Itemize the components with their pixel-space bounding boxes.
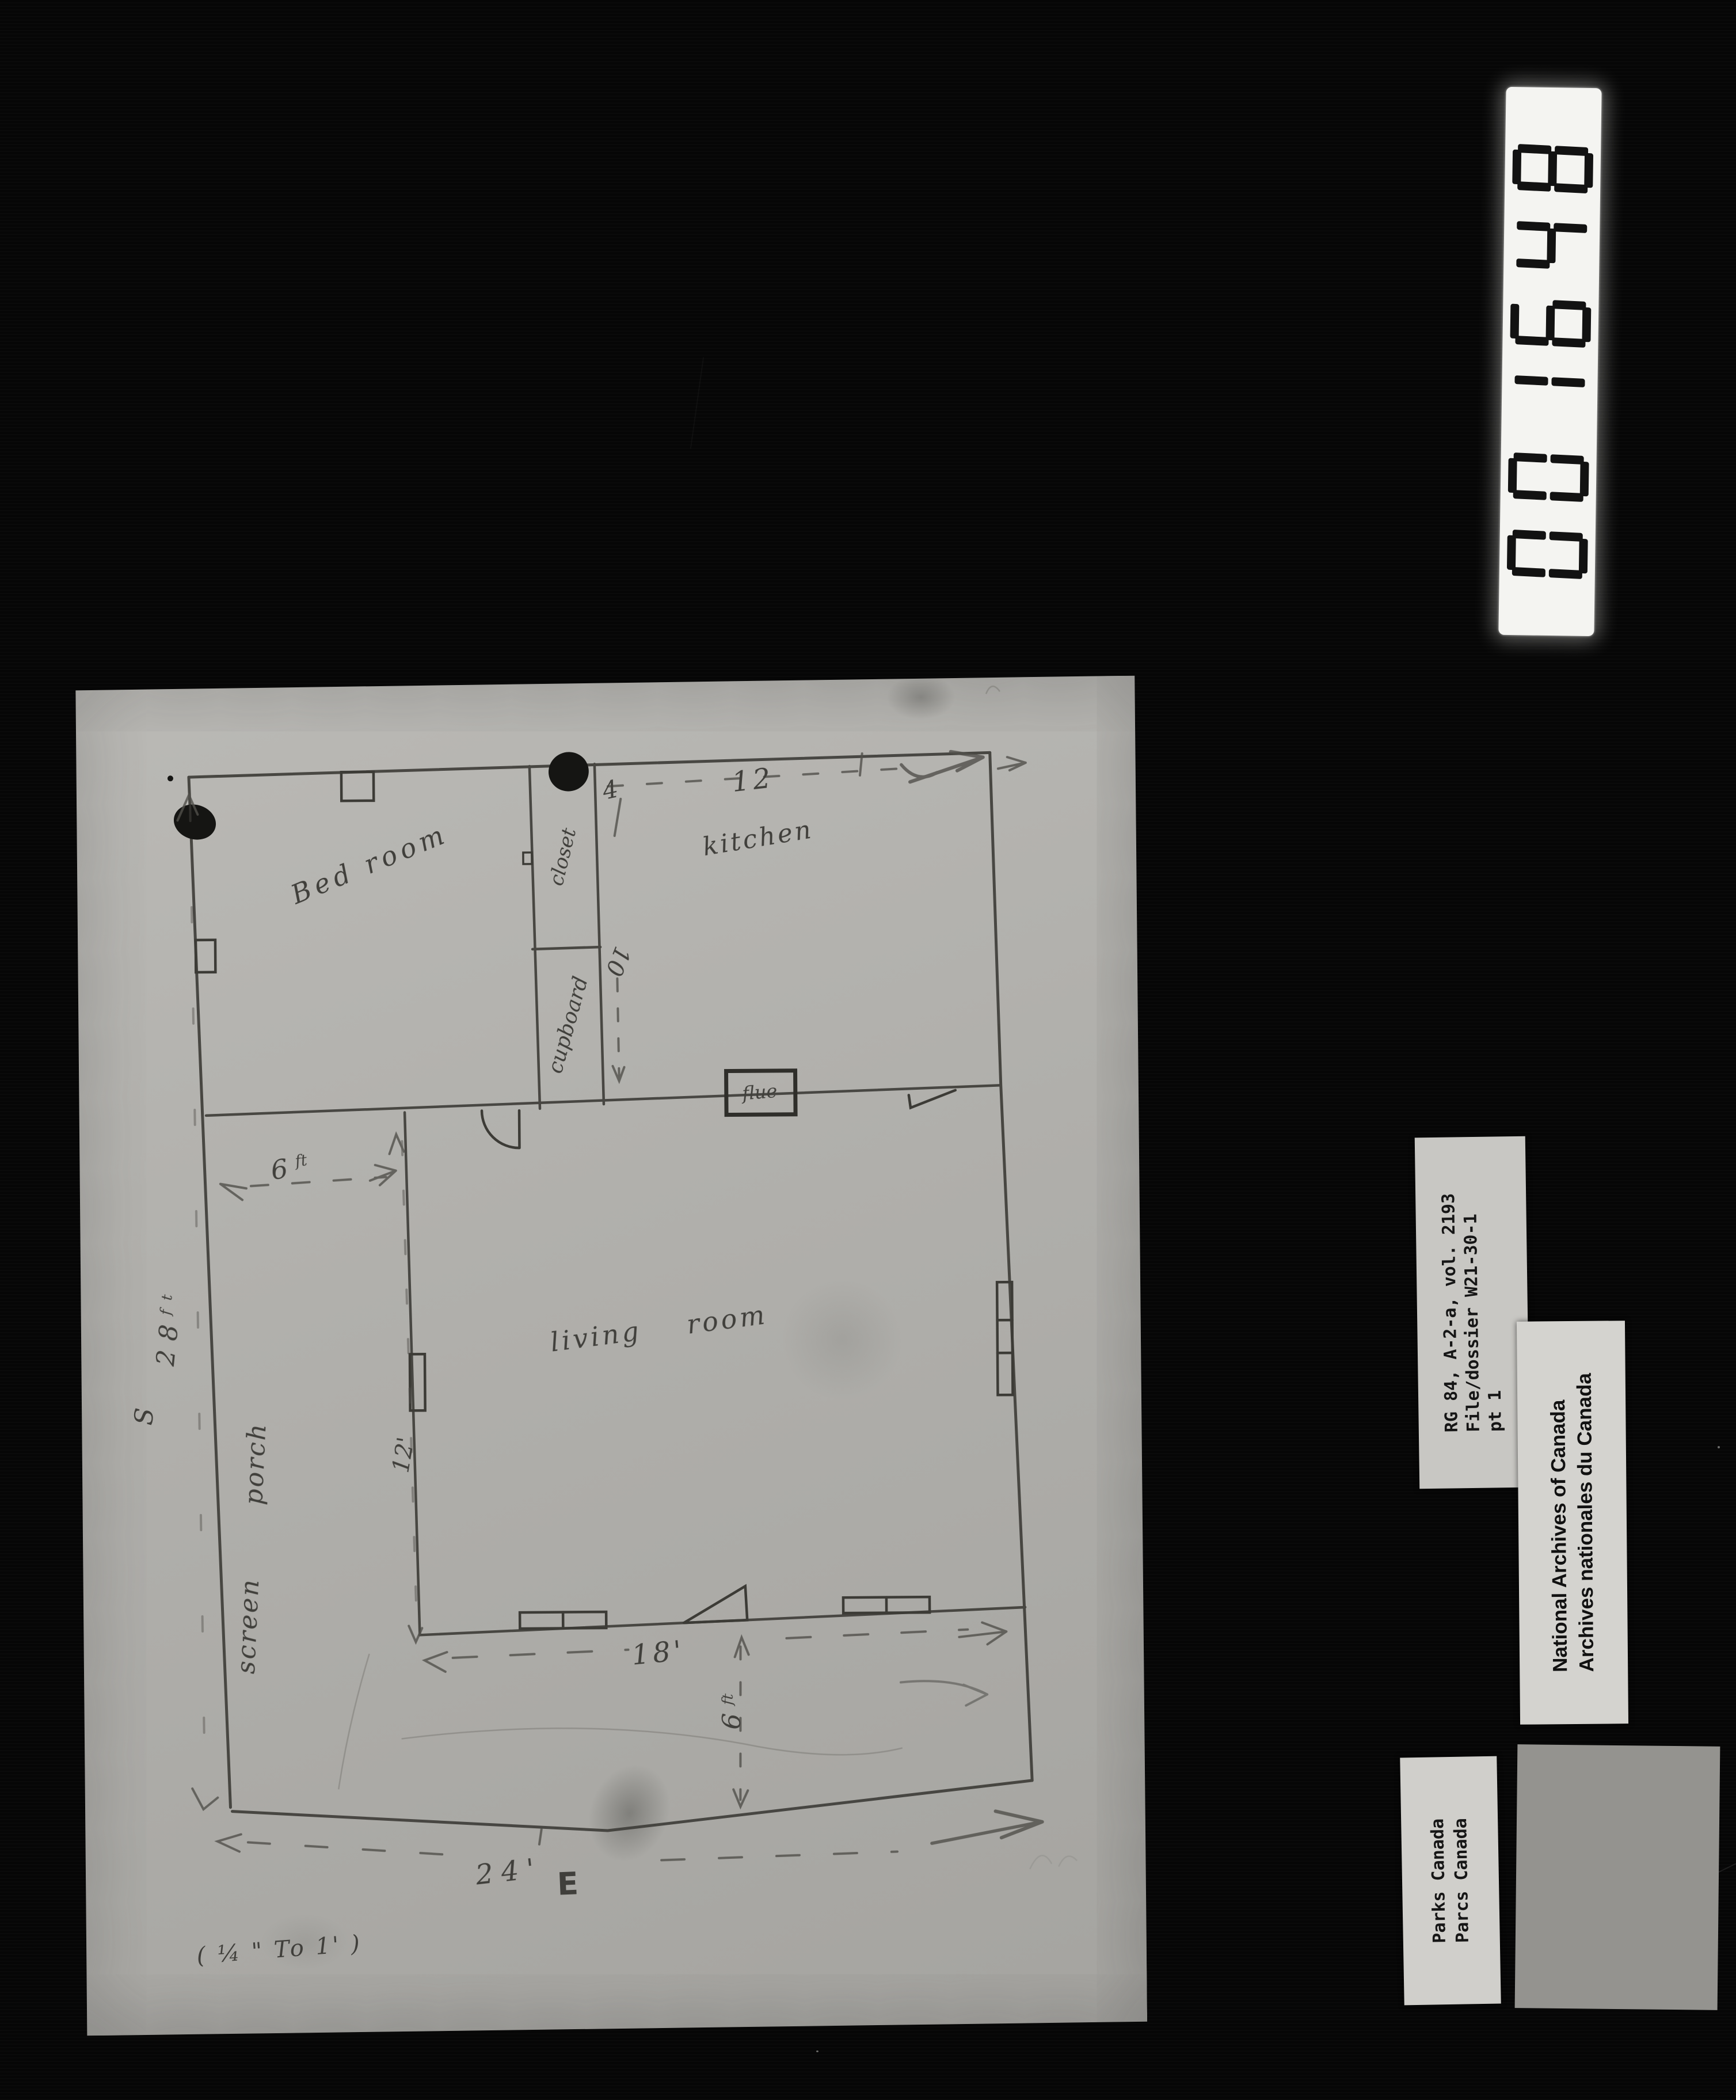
dim-porch-bottom-value: 6 — [717, 1713, 747, 1730]
dim-house-depth-value: 28 — [151, 1314, 185, 1368]
dim-porch-side: 6 ft — [269, 1150, 310, 1186]
dimension-lines — [177, 751, 1042, 1863]
institution-line-fr: Archives nationales du Canada — [1571, 1373, 1601, 1672]
film-scratch — [690, 357, 704, 449]
seven-segment-digit — [1510, 298, 1591, 348]
institution-line-en: National Archives of Canada — [1545, 1373, 1574, 1672]
dim-kitchen-width: 12 — [730, 762, 776, 798]
dim-porch-side-unit: ft — [294, 1151, 309, 1171]
scanned-document-frame: Bed room closet kitchen cupboard living … — [0, 0, 1736, 2100]
creases — [331, 686, 1077, 1874]
seven-segment-digit — [1508, 452, 1589, 503]
backing-sheet — [1515, 1744, 1720, 2010]
seven-segment-digit — [1509, 375, 1590, 425]
compass-east: E — [557, 1865, 579, 1902]
dim-living-width: 18' — [630, 1634, 686, 1671]
dust-speck — [816, 2050, 818, 2052]
dust-speck — [1718, 1446, 1720, 1448]
label-flue: flue — [741, 1080, 778, 1105]
seven-segment-digit — [1512, 144, 1593, 194]
agency-line-en: Parks Canada — [1426, 1819, 1452, 1943]
floor-plan-sheet: Bed room closet kitchen cupboard living … — [72, 676, 1147, 2036]
reference-line-1: RG 84, A-2-a, vol. 2193 — [1438, 1193, 1463, 1433]
dim-house-depth-unit: ft — [157, 1284, 177, 1315]
house-walls — [189, 752, 1033, 1833]
reference-line-3: pt 1 — [1482, 1193, 1507, 1432]
agency-label-strip: Parks Canada Parcs Canada — [1400, 1756, 1501, 2006]
reference-line-2: File/dossier W21-30-1 — [1460, 1193, 1485, 1432]
compass-south: S — [129, 1407, 159, 1426]
frame-counter-strip — [1498, 87, 1601, 636]
dim-porch-bottom: 6 ft — [717, 1693, 748, 1730]
agency-line-fr: Parcs Canada — [1449, 1818, 1475, 1943]
seven-segment-digit — [1511, 221, 1592, 271]
frame-counter-digits — [1507, 145, 1593, 578]
floor-plan-drawing — [72, 676, 1147, 2036]
dim-porch-bottom-unit: ft — [719, 1693, 737, 1706]
reference-label-strip: RG 84, A-2-a, vol. 2193 File/dossier W21… — [1415, 1136, 1530, 1489]
institution-label-strip: National Archives of Canada Archives nat… — [1517, 1321, 1628, 1725]
seven-segment-digit — [1507, 530, 1588, 580]
